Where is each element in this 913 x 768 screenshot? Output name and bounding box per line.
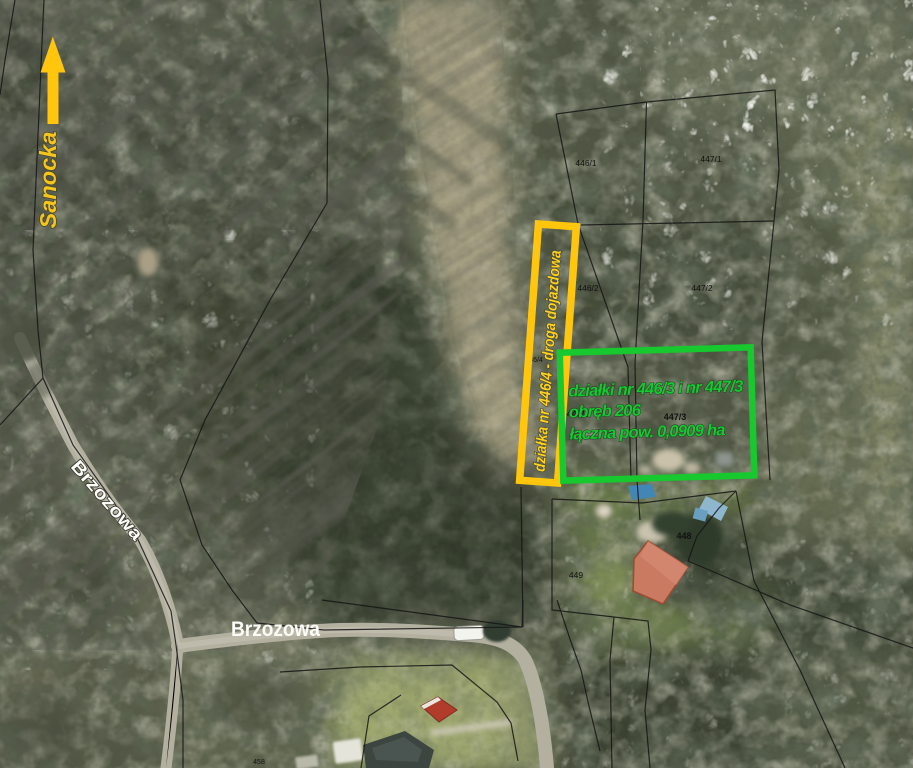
svg-text:448: 448 bbox=[676, 531, 691, 541]
svg-text:obręb 206: obręb 206 bbox=[569, 401, 642, 421]
svg-text:Brzozowa: Brzozowa bbox=[231, 618, 320, 641]
svg-text:458: 458 bbox=[253, 759, 265, 766]
svg-text:447/2: 447/2 bbox=[691, 283, 713, 293]
svg-text:446/1: 446/1 bbox=[575, 158, 597, 168]
svg-text:447/3: 447/3 bbox=[664, 412, 687, 422]
svg-text:447/1: 447/1 bbox=[700, 154, 722, 164]
svg-text:Sanocka: Sanocka bbox=[35, 131, 61, 228]
svg-text:446/2: 446/2 bbox=[577, 283, 599, 293]
svg-text:449: 449 bbox=[569, 570, 583, 580]
